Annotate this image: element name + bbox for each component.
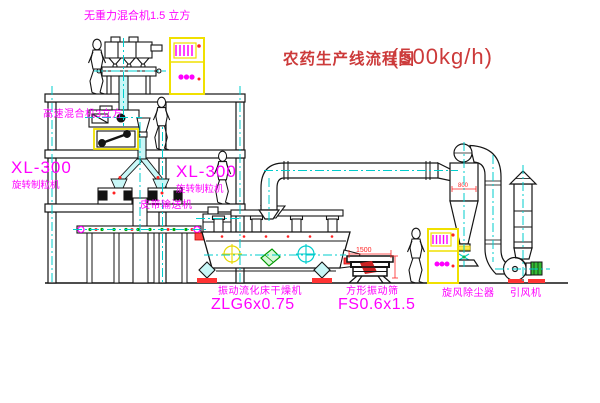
label-gravity-mixer: 无重力混合机1.5 立方 <box>84 11 190 22</box>
belt-conveyor <box>77 226 205 283</box>
chute-dot <box>119 176 122 179</box>
label-granulator-left: 旋转制粒机 <box>12 181 60 191</box>
label-dryer-model: ZLG6x0.75 <box>211 297 295 313</box>
control-cabinet-bottom <box>428 229 458 283</box>
dim-1500-text: 1500 <box>356 247 372 254</box>
label-xl300-right: XL-300 <box>176 163 237 180</box>
worker-figure-ground <box>408 228 425 283</box>
dim-800-text: 800 <box>458 183 469 189</box>
label-sieve-model: FS0.6x1.5 <box>338 297 415 313</box>
flow-diagram-canvas: 1500 800 <box>0 0 600 403</box>
label-belt-conveyor: 皮带输送机 <box>140 201 193 211</box>
control-cabinet-top <box>170 38 204 94</box>
label-xl300-left: XL-300 <box>11 159 72 176</box>
label-cyclone: 旋风除尘器 <box>442 289 495 299</box>
label-fan: 引风机 <box>510 289 542 299</box>
label-granulator-right: 旋转制粒机 <box>176 185 224 195</box>
fluid-bed-dryer <box>197 206 360 283</box>
vibrating-sieve <box>347 256 393 283</box>
chute-dot <box>157 176 160 179</box>
label-high-speed-mixer: 高速混合机3立方 <box>43 110 123 120</box>
granulator-left <box>98 188 132 204</box>
induced-draft-fan <box>504 258 546 284</box>
diagram-capacity: (500kg/h) <box>391 46 493 68</box>
